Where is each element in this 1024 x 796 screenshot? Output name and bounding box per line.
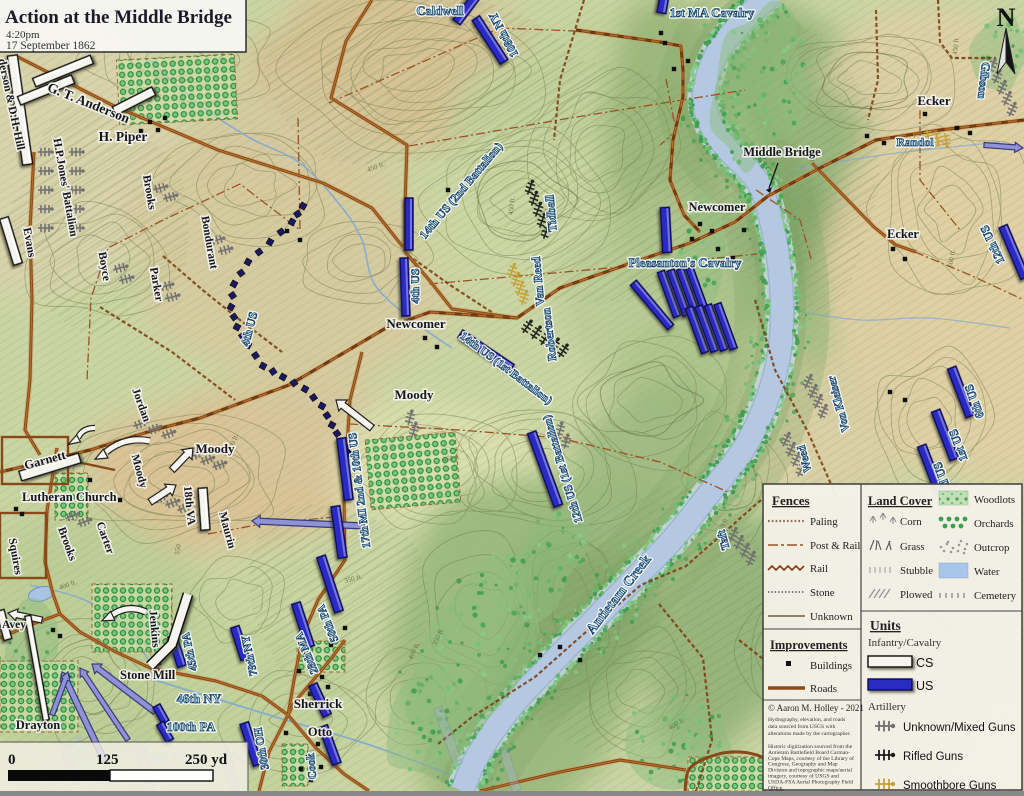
svg-text:alterations made by the cartog: alterations made by the cartographer. <box>768 731 851 737</box>
svg-text:Hydrography, elevation, and ro: Hydrography, elevation, and roads <box>768 717 845 723</box>
svg-text:CS: CS <box>916 656 933 670</box>
svg-text:US: US <box>916 679 933 693</box>
svg-text:Water: Water <box>974 566 1000 578</box>
svg-text:Land Cover: Land Cover <box>868 494 933 508</box>
svg-text:Infantry/Cavalry: Infantry/Cavalry <box>868 637 942 649</box>
svg-text:Improvements: Improvements <box>770 638 848 652</box>
svg-text:450 ft: 450 ft <box>951 38 960 55</box>
svg-text:© Aaron M. Holley - 2021: © Aaron M. Holley - 2021 <box>768 703 864 713</box>
svg-text:Artillery: Artillery <box>868 701 906 713</box>
svg-text:Stone Mill: Stone Mill <box>120 668 176 682</box>
svg-text:data sourced from USGS with: data sourced from USGS with <box>768 723 836 730</box>
svg-text:Caldwell: Caldwell <box>416 4 464 18</box>
svg-text:Fences: Fences <box>772 493 810 508</box>
svg-text:450 ft.: 450 ft. <box>507 196 517 215</box>
svg-text:Outcrop: Outcrop <box>974 542 1009 554</box>
svg-text:Newcomer: Newcomer <box>386 316 445 331</box>
svg-text:1st MA Cavalry: 1st MA Cavalry <box>670 6 755 20</box>
svg-text:Corn: Corn <box>900 516 922 528</box>
svg-text:125: 125 <box>96 752 119 768</box>
svg-text:H. Piper: H. Piper <box>99 129 148 144</box>
svg-text:Plowed: Plowed <box>900 589 933 601</box>
svg-text:Orchards: Orchards <box>974 518 1014 530</box>
svg-text:Cook: Cook <box>305 752 319 780</box>
svg-text:17 September 1862: 17 September 1862 <box>6 40 96 52</box>
svg-text:Action at the Middle Bridge: Action at the Middle Bridge <box>5 7 232 28</box>
svg-text:Grass: Grass <box>900 541 925 553</box>
svg-text:Newcomer: Newcomer <box>689 200 746 214</box>
svg-text:Rifled Guns: Rifled Guns <box>903 751 963 763</box>
svg-text:Smoothbore Guns: Smoothbore Guns <box>903 780 997 791</box>
svg-text:N: N <box>997 3 1016 32</box>
svg-text:Roads: Roads <box>810 683 837 695</box>
svg-text:46th NY: 46th NY <box>177 692 222 706</box>
svg-text:Office.: Office. <box>768 784 784 791</box>
svg-text:4th US: 4th US <box>408 268 422 303</box>
svg-text:Moody: Moody <box>196 441 236 456</box>
svg-text:Paling: Paling <box>810 516 838 528</box>
svg-text:Unknown/Mixed Guns: Unknown/Mixed Guns <box>903 722 1016 734</box>
svg-text:Ecker: Ecker <box>887 227 919 241</box>
svg-text:Lutheran Church: Lutheran Church <box>22 490 117 504</box>
svg-text:Moody: Moody <box>395 387 435 402</box>
svg-text:Middle Bridge: Middle Bridge <box>743 145 821 159</box>
svg-text:Woodlots: Woodlots <box>974 494 1015 506</box>
svg-text:Unknown: Unknown <box>810 611 853 623</box>
svg-text:Post & Rail: Post & Rail <box>810 540 860 552</box>
svg-text:100th PA: 100th PA <box>167 720 216 734</box>
svg-text:Buildings: Buildings <box>810 660 852 672</box>
svg-text:Otto: Otto <box>308 725 332 739</box>
svg-text:250 yd: 250 yd <box>185 752 228 768</box>
svg-text:Avey: Avey <box>2 619 26 631</box>
svg-text:Sherrick: Sherrick <box>294 696 343 711</box>
svg-text:Ecker: Ecker <box>917 93 950 108</box>
svg-text:Pleasanton's Cavalry: Pleasanton's Cavalry <box>629 256 743 270</box>
svg-text:Cemetery: Cemetery <box>974 590 1017 602</box>
svg-text:Drayton: Drayton <box>16 718 60 732</box>
svg-text:Units: Units <box>870 618 901 633</box>
svg-text:Stone: Stone <box>810 587 835 599</box>
svg-text:0: 0 <box>8 752 16 768</box>
svg-text:Randol: Randol <box>896 135 934 149</box>
svg-text:Rail: Rail <box>810 563 828 575</box>
svg-text:Stubble: Stubble <box>900 565 933 577</box>
